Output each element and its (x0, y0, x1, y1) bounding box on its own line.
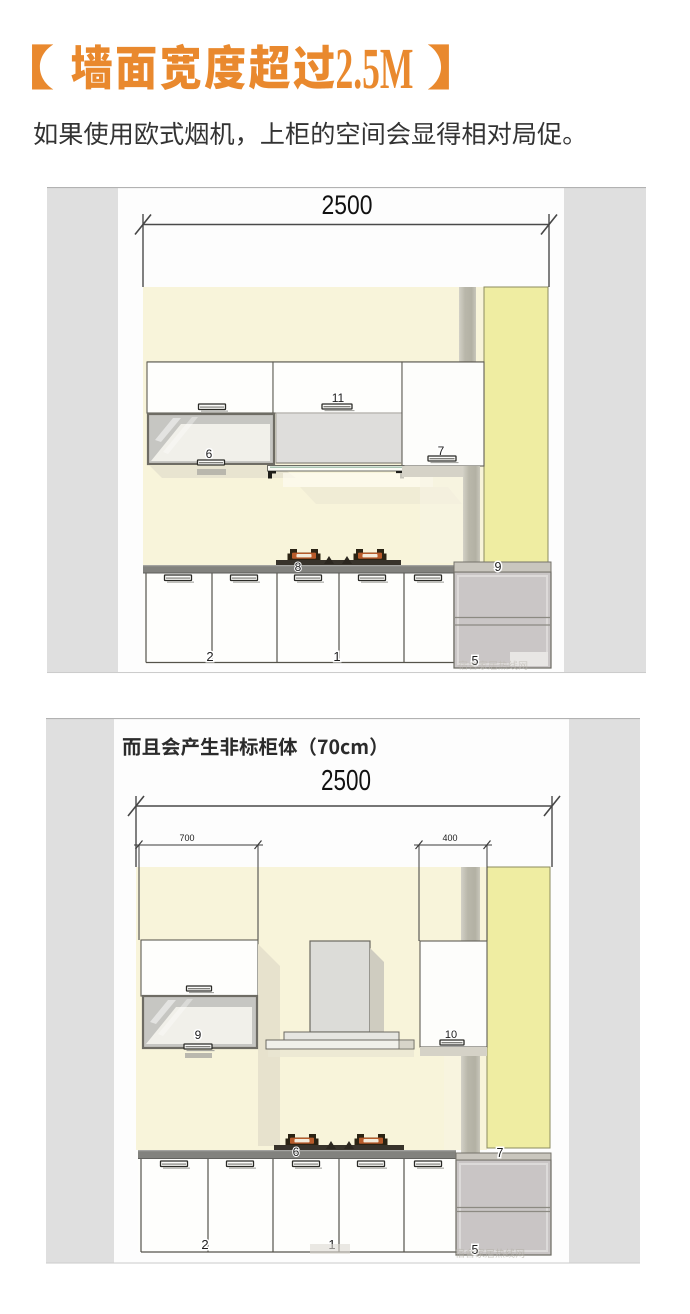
svg-text:7: 7 (497, 1146, 504, 1160)
svg-text:400: 400 (442, 833, 457, 843)
svg-text:2: 2 (206, 649, 213, 664)
svg-text:9: 9 (195, 1028, 202, 1042)
svg-text:9: 9 (495, 560, 502, 574)
svg-text:1: 1 (333, 649, 340, 664)
svg-text:6: 6 (206, 447, 213, 461)
svg-text:6: 6 (293, 1145, 300, 1159)
svg-text:2: 2 (201, 1237, 208, 1252)
svg-text:11: 11 (332, 391, 345, 405)
svg-text:700: 700 (179, 833, 194, 843)
svg-text:2500: 2500 (322, 190, 373, 220)
svg-text:2500: 2500 (321, 765, 371, 797)
svg-text:10: 10 (445, 1029, 457, 1041)
svg-text:8: 8 (295, 560, 302, 574)
